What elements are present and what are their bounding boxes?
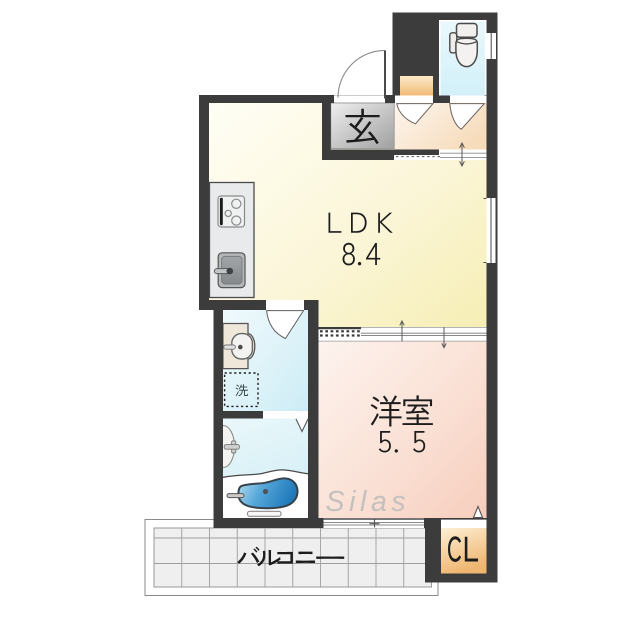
svg-text:Silas: Silas <box>326 486 411 518</box>
